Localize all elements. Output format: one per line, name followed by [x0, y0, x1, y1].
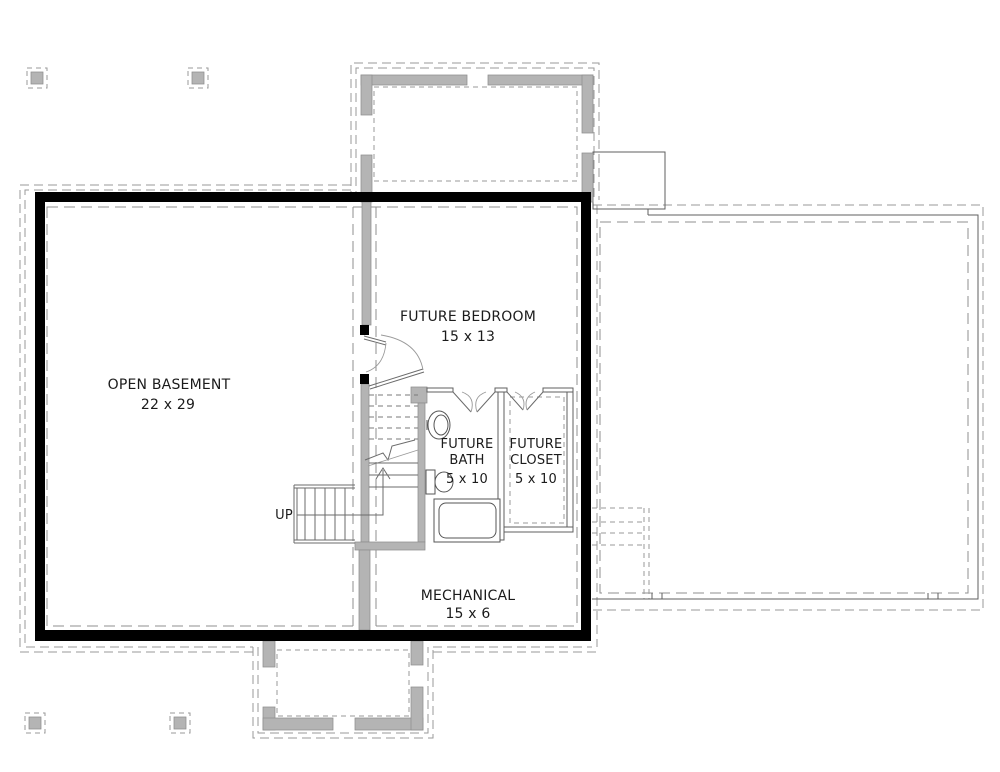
closet-double-door	[507, 392, 543, 410]
door-swings	[364, 335, 543, 412]
bedroom-door	[364, 336, 386, 372]
garage-foundation-outline	[592, 152, 978, 599]
bath-double-door	[453, 392, 495, 412]
stair-up-label: UP	[275, 508, 293, 523]
sink-fixture	[427, 411, 450, 439]
foundation-walls	[35, 192, 591, 641]
floor-plan-drawing: OPEN BASEMENT 22 x 29 FUTURE BEDROOM 15 …	[0, 0, 1000, 772]
support-post	[170, 713, 190, 733]
room-dims-open-basement: 22 x 29	[141, 397, 195, 413]
support-post	[27, 68, 47, 88]
room-dims-future-closet: 5 x 10	[515, 472, 557, 487]
room-label-future-bath-line1: FUTURE	[441, 437, 494, 452]
stairs	[294, 395, 418, 543]
room-label-future-closet-line1: FUTURE	[510, 437, 563, 452]
room-label-future-bath-line2: BATH	[449, 453, 484, 468]
room-dims-future-bath: 5 x 10	[446, 472, 488, 487]
room-labels: OPEN BASEMENT 22 x 29 FUTURE BEDROOM 15 …	[108, 309, 563, 622]
floor-plan-canvas: OPEN BASEMENT 22 x 29 FUTURE BEDROOM 15 …	[0, 0, 1000, 772]
room-label-future-closet-line2: CLOSET	[510, 453, 562, 468]
room-dims-mechanical: 15 x 6	[445, 606, 490, 622]
support-post	[25, 713, 45, 733]
room-dims-future-bedroom: 15 x 13	[441, 329, 495, 345]
bathtub-fixture	[434, 499, 500, 542]
room-label-mechanical: MECHANICAL	[421, 588, 516, 604]
room-label-future-bedroom: FUTURE BEDROOM	[400, 309, 536, 325]
support-post	[188, 68, 208, 88]
room-label-open-basement: OPEN BASEMENT	[108, 377, 231, 393]
